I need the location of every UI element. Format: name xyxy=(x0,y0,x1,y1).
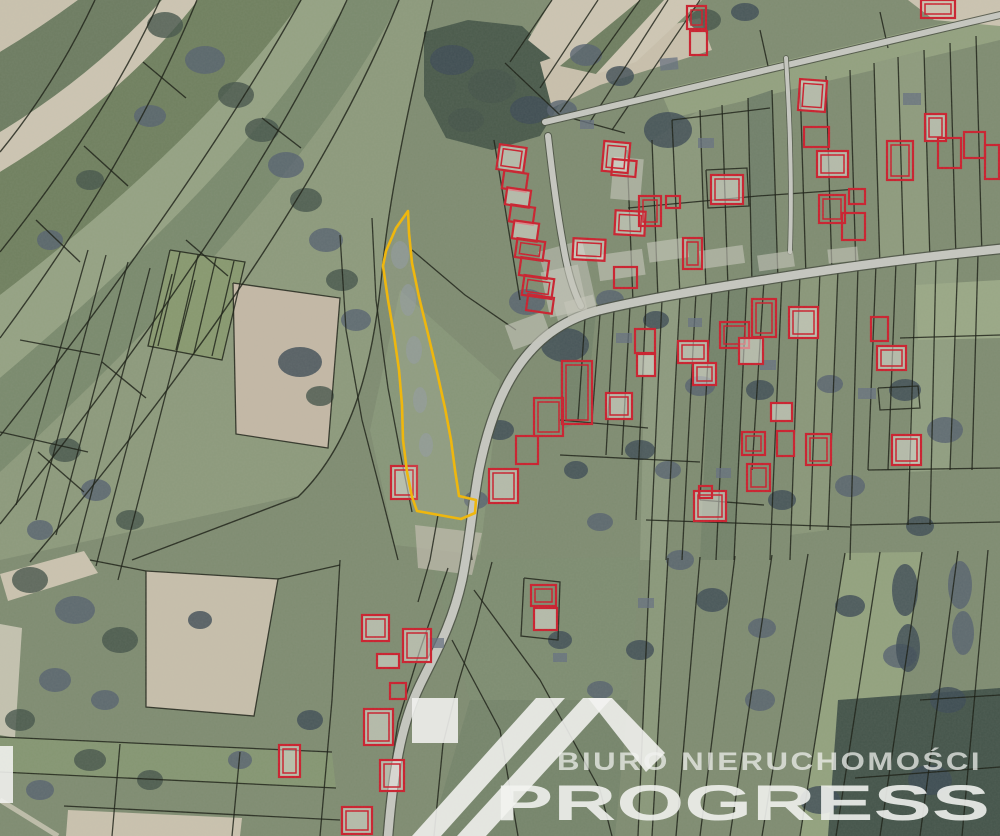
aerial-map-screenshot: BIURO NIERUCHOMOŚCI PROGRESS xyxy=(0,0,1000,836)
watermark-brand-name: PROGRESS xyxy=(495,775,990,831)
watermark-logo-block xyxy=(412,698,458,743)
watermark-agency-name: BIURO NIERUCHOMOŚCI xyxy=(557,746,982,776)
photo-grain-overlay xyxy=(0,0,1000,836)
watermark-logo-block xyxy=(0,746,13,803)
cadastral-aerial-map: BIURO NIERUCHOMOŚCI PROGRESS xyxy=(0,0,1000,836)
